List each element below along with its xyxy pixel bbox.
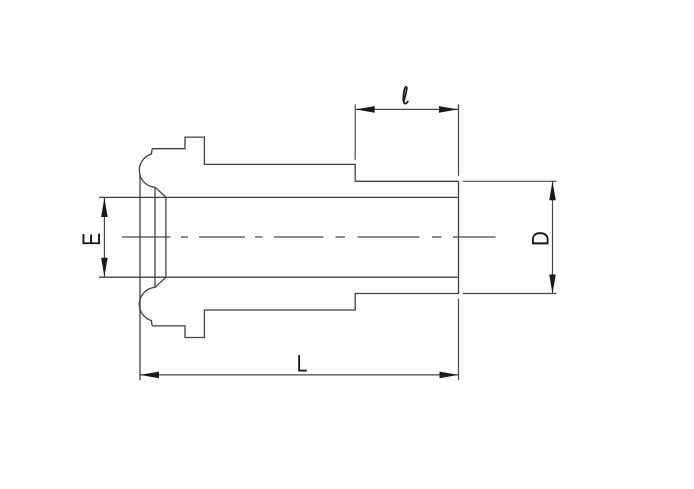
svg-text:D: D <box>527 231 554 246</box>
svg-text:E: E <box>77 233 105 246</box>
svg-text:L: L <box>297 350 308 378</box>
